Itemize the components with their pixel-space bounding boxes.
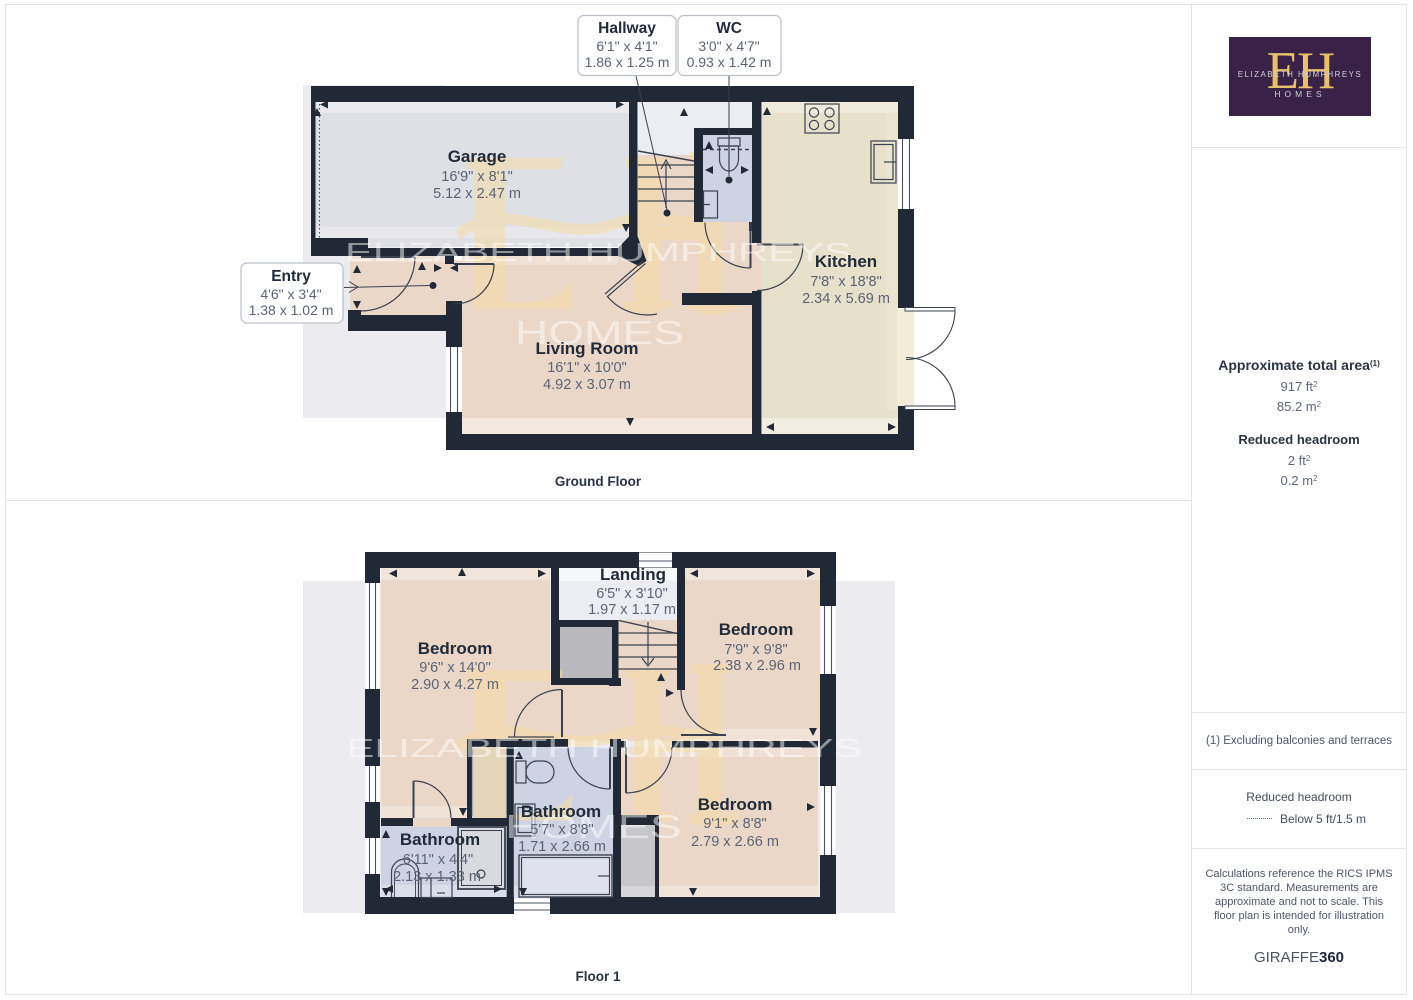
svg-text:Bathroom: Bathroom: [400, 830, 480, 849]
svg-text:2.34 x 5.69 m: 2.34 x 5.69 m: [802, 291, 890, 307]
svg-text:1.97 x 1.17 m: 1.97 x 1.17 m: [588, 602, 676, 618]
svg-text:Entry: Entry: [271, 268, 311, 285]
svg-text:Kitchen: Kitchen: [815, 252, 877, 271]
svg-text:6'1" x 4'1": 6'1" x 4'1": [596, 38, 657, 54]
svg-text:Bedroom: Bedroom: [418, 639, 493, 658]
svg-text:Garage: Garage: [448, 147, 507, 166]
svg-text:1.71 x 2.66 m: 1.71 x 2.66 m: [518, 839, 606, 855]
svg-text:WC: WC: [716, 20, 742, 37]
svg-text:1.38 x 1.02 m: 1.38 x 1.02 m: [249, 302, 334, 318]
svg-text:2.90 x 4.27 m: 2.90 x 4.27 m: [411, 677, 499, 693]
svg-text:2.13 x 1.33 m: 2.13 x 1.33 m: [393, 869, 481, 885]
svg-text:Bedroom: Bedroom: [698, 795, 773, 814]
svg-text:Landing: Landing: [600, 565, 666, 584]
svg-text:6'5" x 3'10": 6'5" x 3'10": [596, 586, 667, 602]
svg-text:ELIZABETH HUMPHREYS: ELIZABETH HUMPHREYS: [346, 733, 862, 763]
svg-text:16'1" x 10'0": 16'1" x 10'0": [547, 360, 627, 376]
svg-text:Hallway: Hallway: [598, 20, 656, 37]
svg-text:Bathroom: Bathroom: [521, 802, 601, 821]
svg-text:3'0" x 4'7": 3'0" x 4'7": [698, 38, 759, 54]
svg-text:7'9" x 9'8": 7'9" x 9'8": [724, 642, 787, 658]
svg-text:6'11" x 4'4": 6'11" x 4'4": [403, 852, 473, 868]
svg-text:9'1" x 8'8": 9'1" x 8'8": [703, 816, 766, 832]
svg-text:4.92 x 3.07 m: 4.92 x 3.07 m: [543, 377, 631, 393]
svg-text:4'6" x 3'4": 4'6" x 3'4": [260, 286, 321, 302]
svg-text:9'6" x 14'0": 9'6" x 14'0": [419, 660, 490, 676]
svg-text:7'8" x 18'8": 7'8" x 18'8": [810, 274, 881, 290]
svg-text:Floor 1: Floor 1: [575, 969, 620, 984]
svg-text:2.38 x 2.96 m: 2.38 x 2.96 m: [713, 658, 801, 674]
svg-text:Living Room: Living Room: [536, 339, 639, 358]
svg-text:1.86 x 1.25 m: 1.86 x 1.25 m: [585, 54, 670, 70]
svg-text:5'7" x 8'8": 5'7" x 8'8": [530, 822, 593, 838]
svg-text:16'9" x 8'1": 16'9" x 8'1": [441, 169, 512, 185]
svg-text:0.93 x 1.42 m: 0.93 x 1.42 m: [687, 54, 772, 70]
svg-text:5.12 x 2.47 m: 5.12 x 2.47 m: [433, 186, 521, 202]
svg-text:Bedroom: Bedroom: [719, 620, 794, 639]
svg-text:Ground Floor: Ground Floor: [555, 474, 642, 489]
svg-text:ELIZABETH HUMPHREYS: ELIZABETH HUMPHREYS: [345, 237, 852, 267]
svg-text:2.79 x 2.66 m: 2.79 x 2.66 m: [691, 834, 779, 850]
